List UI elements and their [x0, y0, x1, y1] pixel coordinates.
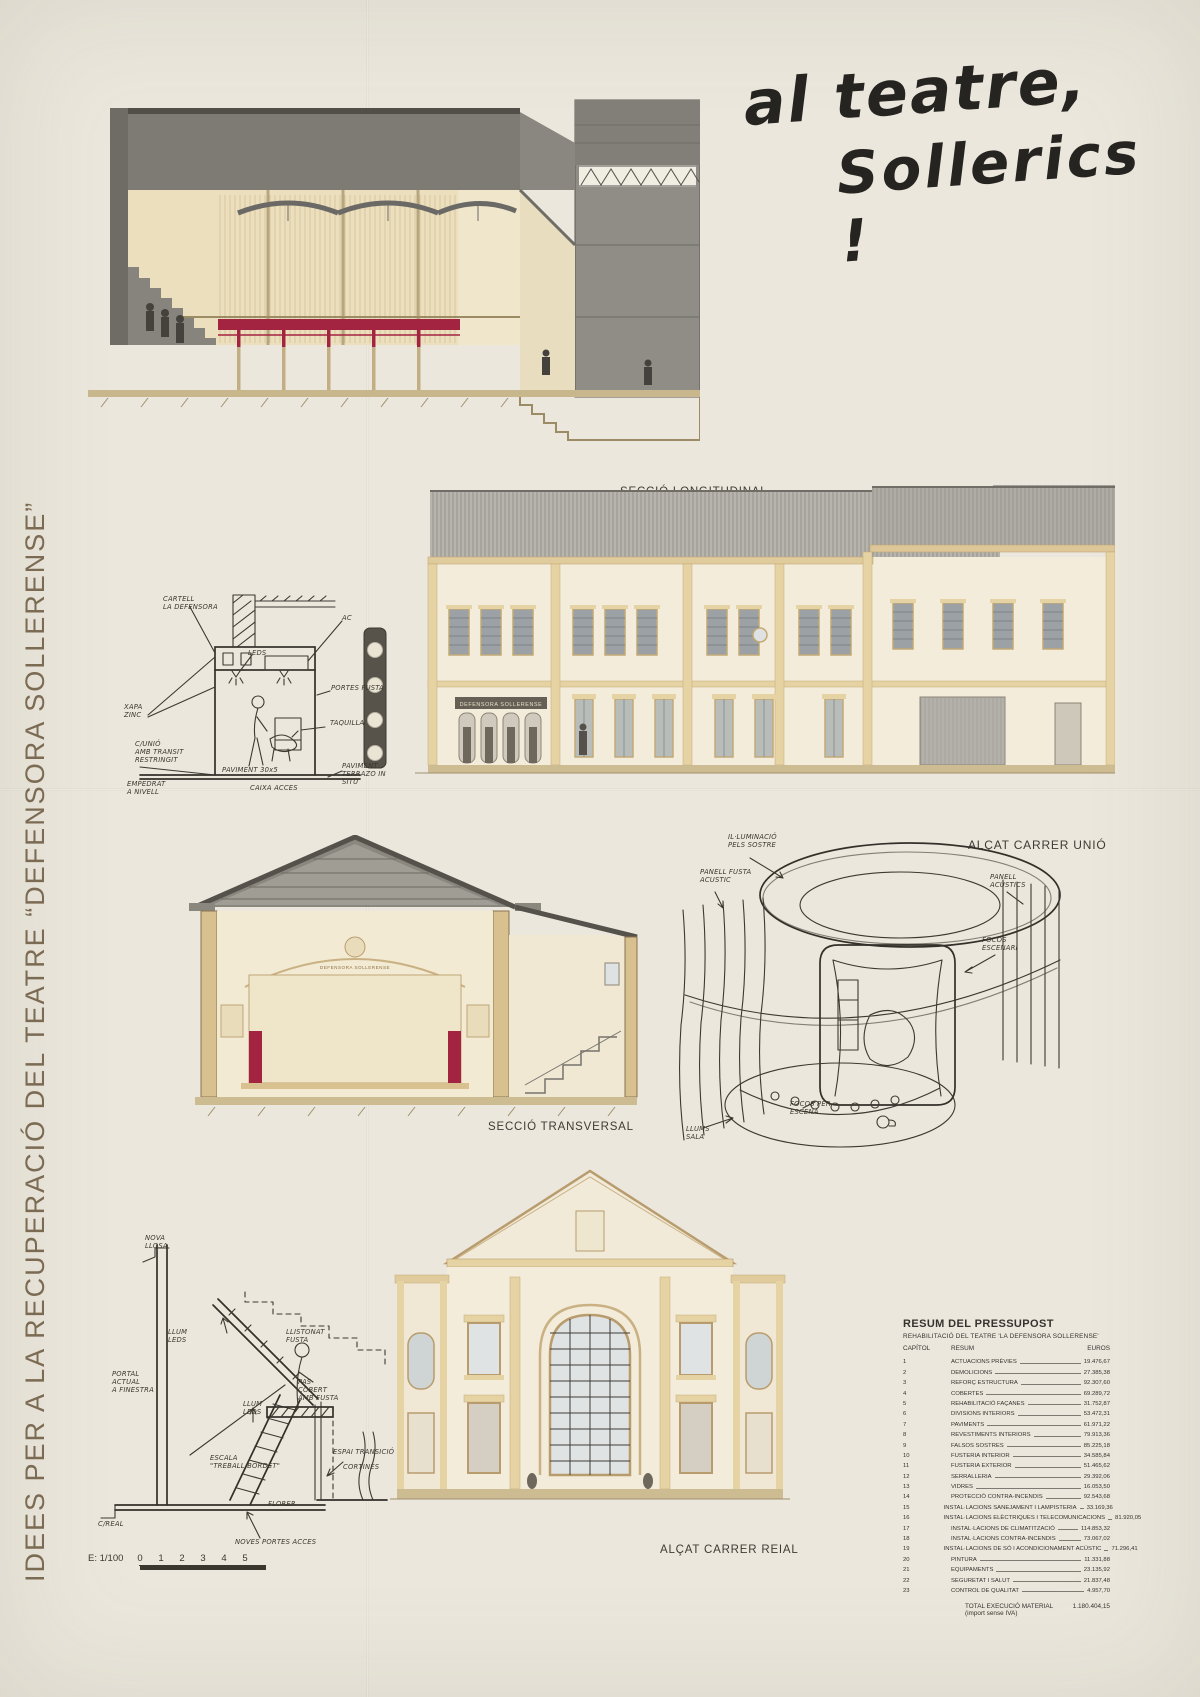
main-title: al teatre, Sollerics !: [741, 37, 1185, 281]
note-nova-llosa: NOVA LLOSA: [145, 1234, 168, 1250]
note-llum-leds: LLUM LEDS: [168, 1328, 187, 1344]
note-florer: FLORER: [268, 1500, 296, 1508]
budget-total-value: 1.180.404,15: [1073, 1603, 1110, 1617]
budget-table: RESUM DEL PRESSUPOST REHABILITACIÓ DEL T…: [903, 1318, 1110, 1617]
budget-row: 12SERRALLERIA29.392,06: [903, 1469, 1110, 1479]
note-paviment-30: PAVIMENT 30x5: [222, 766, 278, 774]
main-title-line2: Sollerics !: [834, 116, 1185, 276]
note-cartell: CARTELL LA DEFENSORA: [163, 595, 218, 611]
side-title: IDEES PER A LA RECUPERACIÓ DEL TEATRE “D…: [20, 612, 51, 1582]
budget-row: 1ACTUACIONS PRÈVIES19.476,67: [903, 1355, 1110, 1365]
sketch-interior-perspective: [655, 810, 1065, 1165]
budget-header-capitol: CAPÍTOL: [903, 1345, 951, 1352]
label-alcat-carrer-reial: ALÇAT CARRER REIAL: [660, 1544, 799, 1556]
budget-row: 21EQUIPAMENTS23.135,92: [903, 1563, 1110, 1573]
note-illuminacio: IL·LUMINACIÓ PELS SOSTRE: [728, 833, 777, 849]
budget-row: 18INSTAL·LACIONS CONTRA-INCENDIS73.067,0…: [903, 1532, 1110, 1542]
note-carrer-real: C/REAL: [98, 1520, 124, 1528]
note-llums-sala: LLUMS SALA: [686, 1125, 710, 1141]
drawing-alcat-carrer-unio: DEFENSORA SOLLERENSE: [415, 485, 1115, 775]
budget-title: RESUM DEL PRESSUPOST: [903, 1318, 1110, 1330]
note-leds: LEDS: [248, 649, 266, 657]
budget-row: 16INSTAL·LACIONS ELÈCTRIQUES I TELECOMUN…: [903, 1511, 1110, 1521]
budget-row: 23CONTROL DE QUALITAT4.957,70: [903, 1584, 1110, 1594]
scale-label: E: 1/100: [88, 1553, 123, 1564]
note-empedrat: EMPEDRAT A NIVELL: [127, 780, 165, 796]
note-portal: PORTAL ACTUAL A FINESTRA: [112, 1370, 154, 1394]
budget-subtitle: REHABILITACIÓ DEL TEATRE 'LA DEFENSORA S…: [903, 1333, 1110, 1340]
budget-row: 3REFORÇ ESTRUCTURA92.307,60: [903, 1376, 1110, 1386]
budget-row: 9FALSOS SOSTRES85.225,18: [903, 1438, 1110, 1448]
label-seccio-transversal: SECCIÓ TRANSVERSAL: [488, 1121, 634, 1133]
budget-row: 5REHABILITACIÓ FAÇANES31.752,87: [903, 1397, 1110, 1407]
budget-rows: 1ACTUACIONS PRÈVIES19.476,672DEMOLICIONS…: [903, 1355, 1110, 1594]
scale-tick-number: 4: [221, 1553, 242, 1564]
scale-tick-number: 2: [179, 1553, 200, 1564]
proscenium-sign-text: DEFENSORA SOLLERENSE: [320, 965, 390, 970]
scale-tick-number: 3: [200, 1553, 221, 1564]
poster: IDEES PER A LA RECUPERACIÓ DEL TEATRE “D…: [0, 0, 1200, 1697]
note-espai-transicio: ESPAI TRANSICIÓ: [333, 1448, 394, 1456]
note-llum-leds-2: LLUM LEDS: [243, 1400, 262, 1416]
budget-row: 8REVESTIMENTS INTERIORS79.913,36: [903, 1428, 1110, 1438]
budget-total-label: TOTAL EXECUCIÓ MATERIAL (import sense IV…: [903, 1603, 1073, 1617]
note-escala: ESCALA "TREBALL·BORDET": [210, 1454, 280, 1470]
note-carrer-unio: C/UNIÓ AMB TRANSIT RESTRINGIT: [135, 740, 184, 764]
note-noves-portes: NOVES PORTES ACCES: [235, 1538, 316, 1546]
facade-sign-text: DEFENSORA SOLLERENSE: [460, 702, 543, 708]
note-portes-fusta: PORTES FUSTA: [331, 684, 384, 692]
note-pas-cobert: PAS COBERT AMB FUSTA: [298, 1378, 339, 1402]
note-panell-fusta: PANELL FUSTA ACUSTIC: [700, 868, 751, 884]
note-focos-escena: FOCOS PER ESCENA: [790, 1100, 831, 1116]
scale-tick-number: 1: [158, 1553, 179, 1564]
drawing-seccio-longitudinal: [88, 95, 700, 455]
note-focos-escenari: FOCOS ESCENARI: [982, 936, 1018, 952]
note-taquilla: TAQUILLA: [330, 719, 364, 727]
budget-row: 17INSTAL·LACIONS DE CLIMATITZACIÓ114.853…: [903, 1521, 1110, 1531]
drawing-alcat-carrer-reial: [390, 1163, 790, 1531]
drawing-seccio-transversal: DEFENSORA SOLLERENSE: [185, 835, 645, 1120]
scale-ticks: 012345: [137, 1553, 263, 1564]
note-caixa-acces: CAIXA ACCES: [250, 784, 298, 792]
budget-row: 2DEMOLICIONS27.385,38: [903, 1365, 1110, 1375]
budget-total: TOTAL EXECUCIÓ MATERIAL (import sense IV…: [903, 1603, 1110, 1617]
note-llistonat: LLISTONAT FUSTA: [286, 1328, 325, 1344]
note-paviment-terrazo: PAVIMENT TERRAZO IN SITU: [342, 762, 386, 786]
budget-row: 22SEGURETAT I SALUT21.837,48: [903, 1573, 1110, 1583]
note-ac: AC: [342, 614, 352, 622]
budget-header: CAPÍTOL RESUM EUROS: [903, 1345, 1110, 1352]
scale-tick-number: 0: [137, 1553, 158, 1564]
note-cortines: CORTINES: [343, 1463, 379, 1471]
budget-row: 20PINTURA11.331,88: [903, 1552, 1110, 1562]
budget-row: 19INSTAL·LACIONS DE SÓ I ACONDICIONAMENT…: [903, 1542, 1110, 1552]
note-panell-acustics: PANELL ACUSTICS: [990, 873, 1026, 889]
budget-row: 4COBERTES69.289,72: [903, 1386, 1110, 1396]
budget-header-resum: RESUM: [951, 1345, 1087, 1352]
budget-row: 6DIVISIONS INTERIORS53.472,31: [903, 1407, 1110, 1417]
budget-row: 11FUSTERIA EXTERIOR51.465,62: [903, 1459, 1110, 1469]
scale-bar: E: 1/100 012345: [88, 1553, 263, 1564]
note-xapa-zinc: XAPA ZINC: [124, 703, 143, 719]
budget-row: 15INSTAL·LACIONS SANEJAMENT I LAMPISTERI…: [903, 1500, 1110, 1510]
budget-row: 14PROTECCIÓ CONTRA-INCENDIS92.543,68: [903, 1490, 1110, 1500]
budget-row: 7PAVIMENTS61.971,22: [903, 1417, 1110, 1427]
scale-tick-number: 5: [242, 1553, 263, 1564]
budget-row: 13VIDRES16.053,50: [903, 1480, 1110, 1490]
budget-row: 10FUSTERIA INTERIOR34.585,84: [903, 1449, 1110, 1459]
budget-header-euros: EUROS: [1087, 1345, 1110, 1352]
